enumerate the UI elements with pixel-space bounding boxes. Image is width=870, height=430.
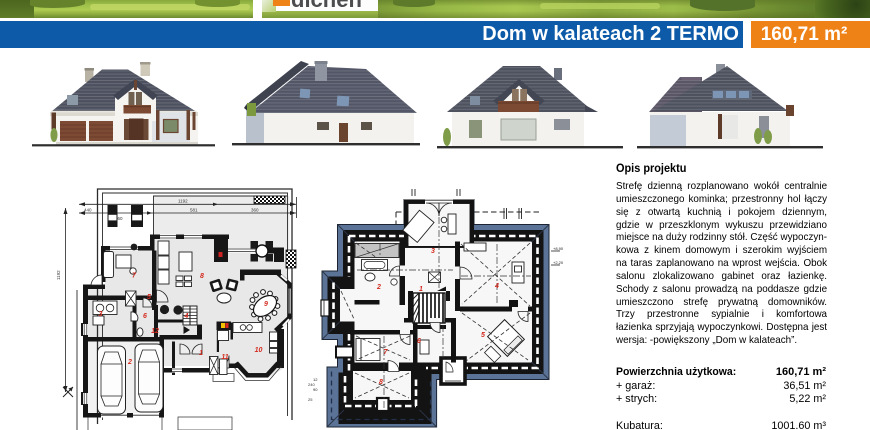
svg-text:4: 4 [184, 313, 189, 320]
svg-text:360: 360 [251, 208, 259, 213]
svg-text:1192: 1192 [56, 270, 61, 280]
svg-text:1: 1 [419, 286, 423, 293]
svg-text:5: 5 [147, 294, 151, 301]
svg-text:1: 1 [199, 350, 203, 357]
svg-text:1192: 1192 [178, 199, 188, 204]
svg-text:12: 12 [151, 328, 159, 335]
svg-text:3: 3 [431, 248, 435, 255]
svg-text:581: 581 [190, 208, 198, 213]
svg-text:5: 5 [481, 332, 485, 339]
svg-text:3: 3 [99, 311, 103, 318]
svg-text:8: 8 [200, 273, 204, 280]
svg-text:6: 6 [143, 313, 147, 320]
svg-text:90: 90 [313, 387, 318, 392]
svg-text:2: 2 [127, 359, 132, 366]
svg-text:4: 4 [494, 283, 499, 290]
svg-text:2: 2 [376, 284, 381, 291]
svg-text:+8,90: +8,90 [553, 246, 564, 251]
svg-text:6: 6 [417, 338, 421, 345]
svg-text:11: 11 [221, 354, 228, 361]
svg-text:25: 25 [308, 397, 313, 402]
svg-text:10: 10 [255, 347, 263, 354]
svg-text:8: 8 [379, 379, 383, 386]
svg-text:+2,20: +2,20 [553, 260, 564, 265]
svg-text:9: 9 [264, 301, 268, 308]
svg-text:12: 12 [313, 377, 318, 382]
svg-text:440: 440 [84, 208, 92, 213]
